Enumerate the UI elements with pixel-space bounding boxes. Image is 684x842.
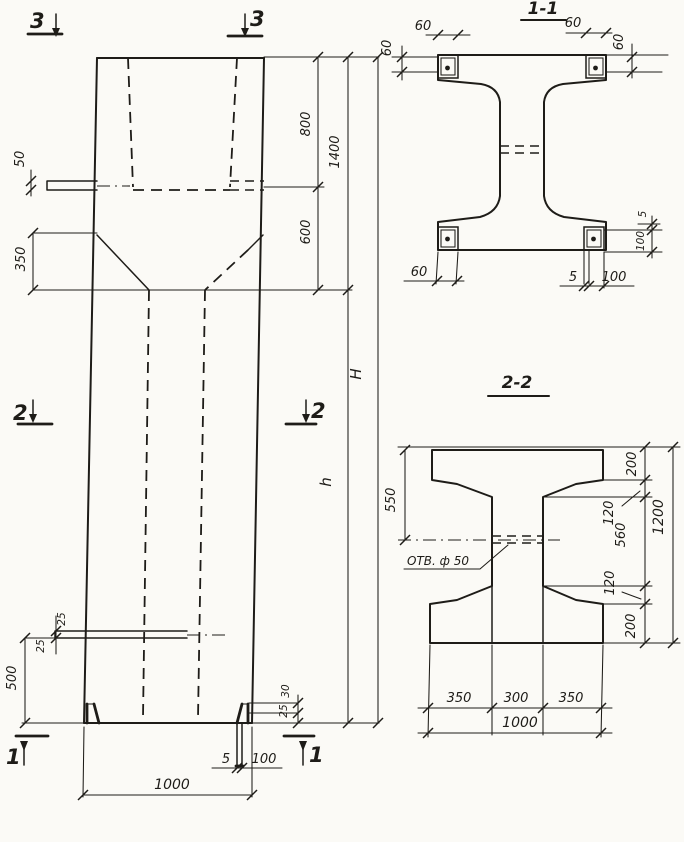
dim-500: 500 [5,666,20,691]
hidden-lines [128,58,264,718]
dim-corner-25: 25 [278,704,290,718]
dim-25-bottom: 25 [35,639,47,653]
elevation-view: 50 350 800 1400 600 H h 25 25 500 30 25 … [5,7,383,800]
section-2-2-view: 2-2 ОТВ. ф 50 [384,373,680,738]
dim-5-right: 5 [637,210,649,217]
section-1-1-view: 1-1 60 60 60 60 [380,0,668,291]
dim-600: 600 [299,220,314,245]
hole-strip [55,631,228,638]
web-edges-through-flange [492,586,543,643]
drawing-canvas: 50 350 800 1400 600 H h 25 25 500 30 25 … [0,0,684,842]
dim-60-tr-h: 60 [612,34,627,51]
dim-1000-section: 1000 [502,715,538,731]
dim-100-bottom: 100 [602,270,627,285]
dim-h: h [317,477,335,487]
svg-text:1: 1 [309,743,324,767]
dim-1000: 1000 [154,777,190,793]
dim-60-bl: 60 [411,265,428,280]
svg-text:3: 3 [30,9,45,33]
section-marker-2-right: 2 [286,399,326,424]
web-hole-dashes [500,146,544,153]
svg-text:2: 2 [13,401,28,425]
dim-350-right: 350 [559,691,584,706]
dim-100-right: 100 [635,231,647,251]
hole-label: ОТВ. ф 50 [407,554,469,568]
dim-plate-offset-50: 50 [13,151,28,168]
dim-350: 350 [14,247,29,272]
section-2-2-title: 2-2 [502,373,533,393]
dim-200-top: 200 [625,452,640,477]
section-marker-1-left: 1 [6,736,48,769]
section-marker-2-left: 2 [13,400,52,425]
dim-1200: 1200 [651,499,667,535]
embedded-plate-strip [47,181,130,190]
dim-550: 550 [384,488,399,513]
dim-H: H [347,368,365,379]
section-marker-1-right: 1 [284,736,324,767]
dim-120-bottom: 120 [603,571,618,596]
section-marker-3-right: 3 [228,7,265,37]
dim-60-tr-w: 60 [565,16,582,31]
taper-edge-left [97,235,149,290]
section-2-2-dim-lines [398,442,680,738]
section-1-1-title: 1-1 [528,0,559,19]
section-2-2-outline [430,450,603,643]
dim-1400: 1400 [328,135,343,168]
dim-120-top: 120 [602,501,617,526]
dim-tab-5: 5 [222,752,230,767]
svg-text:2: 2 [311,399,326,423]
section-marker-3-left: 3 [28,9,62,37]
svg-text:3: 3 [250,7,265,31]
dim-corner-30: 30 [280,684,292,698]
svg-text:1: 1 [6,745,21,769]
dim-5-bottom: 5 [569,270,577,285]
dim-200-bottom: 200 [624,614,639,639]
dim-tab-100: 100 [252,752,277,767]
dim-800: 800 [299,112,314,137]
dim-60-tl-w: 60 [415,19,432,34]
dim-560: 560 [614,523,629,548]
dim-300: 300 [504,691,529,706]
dim-60-tl-h: 60 [380,40,395,57]
technical-drawing-sheet: 50 350 800 1400 600 H h 25 25 500 30 25 … [0,0,684,842]
dim-350-left: 350 [447,691,472,706]
dim-25-top: 25 [56,612,68,626]
